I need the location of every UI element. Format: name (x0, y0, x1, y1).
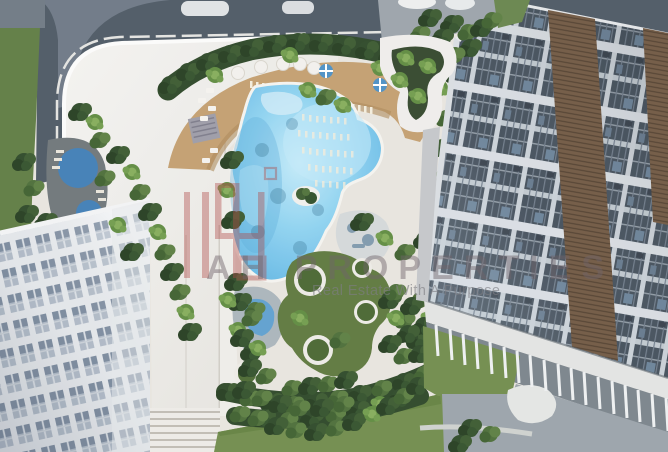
svg-text:Real Estate With A Purpose: Real Estate With A Purpose (312, 283, 500, 299)
